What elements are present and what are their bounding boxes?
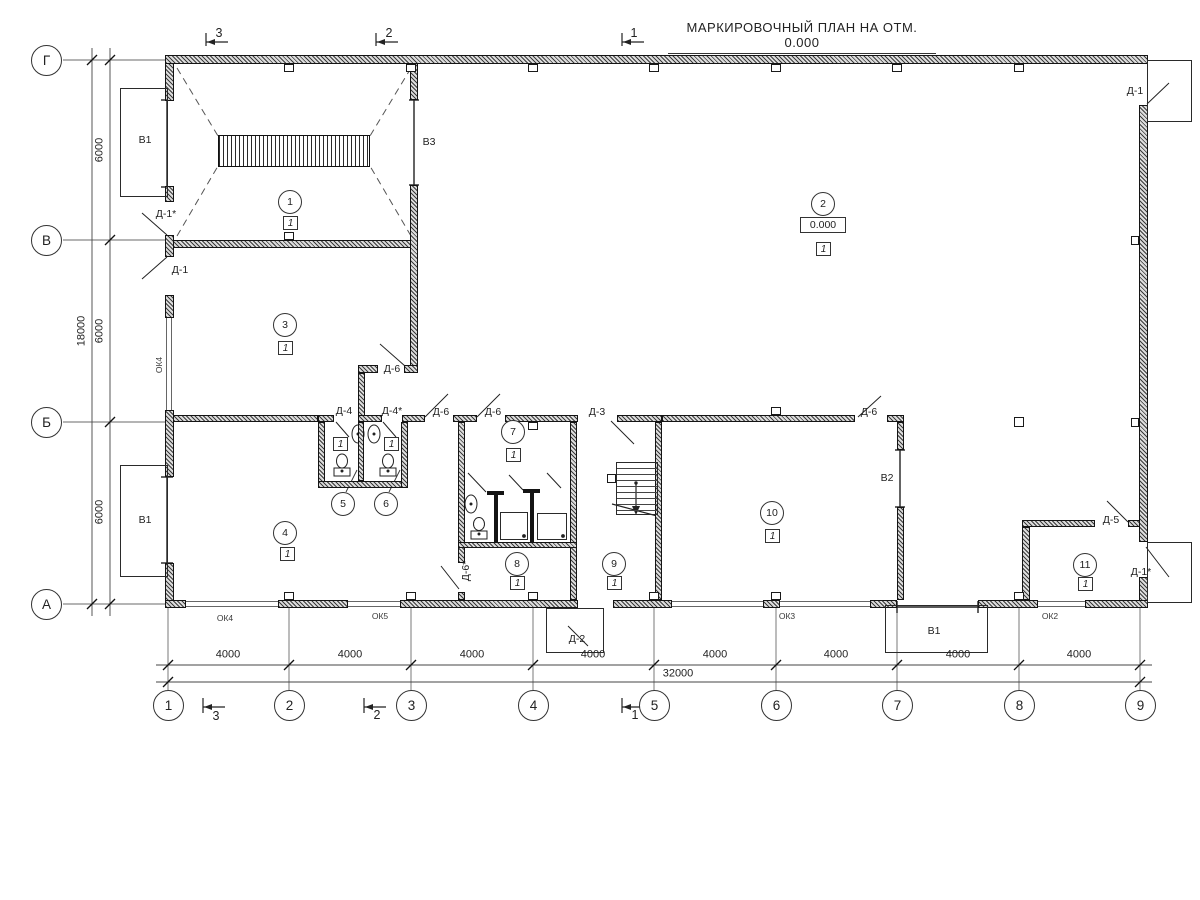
wall-row-b <box>402 415 425 422</box>
room-number-circle-1: 1 <box>278 190 302 214</box>
wall-wc-right <box>401 422 408 488</box>
wall-room78-left <box>458 592 465 600</box>
section-mark-bottom-2: 2 <box>374 709 381 722</box>
dim-bottom-2: 4000 <box>460 650 484 661</box>
room-number-circle-11: 11 <box>1073 553 1097 577</box>
wall-wc-bottom <box>318 481 408 488</box>
dim-left-0: 6000 <box>95 138 106 162</box>
window-ok4-leftwall <box>166 318 172 410</box>
floor-type-box-room-6: 1 <box>384 437 399 451</box>
wall-room1-east <box>410 185 418 373</box>
wall-room11-left <box>1022 527 1030 600</box>
window-label-ok4: ОК4 <box>217 614 233 623</box>
door-label-d1star-left: Д-1* <box>156 209 177 220</box>
room-number-circle-3: 3 <box>273 313 297 337</box>
dim-bottom-7: 4000 <box>1067 650 1091 661</box>
dim-bottom-5: 4000 <box>824 650 848 661</box>
floor-type-box-room-7: 1 <box>506 448 521 462</box>
door-label-d5: Д-5 <box>1103 515 1119 526</box>
column-marker <box>649 592 659 600</box>
staircase <box>616 462 658 515</box>
dim-bottom-4: 4000 <box>703 650 727 661</box>
column-marker <box>528 592 538 600</box>
window-label-ok4-leftwall: ОК4 <box>155 357 164 373</box>
room-number-circle-7: 7 <box>501 420 525 444</box>
wall-bottom <box>763 600 780 608</box>
window-ok2 <box>1038 601 1085 607</box>
column-marker <box>406 592 416 600</box>
door-label-d4star: Д-4* <box>382 406 403 417</box>
shower-stall <box>537 513 567 540</box>
dim-left-2: 6000 <box>95 500 106 524</box>
dim-left-total: 18000 <box>77 316 88 347</box>
window-ok3 <box>672 601 763 607</box>
shower-partition-cap <box>523 489 540 493</box>
room-number-circle-5: 5 <box>331 492 355 516</box>
dim-bottom-0: 4000 <box>216 650 240 661</box>
shower-partition <box>530 490 534 542</box>
column-marker <box>1014 592 1024 600</box>
wall-room3-jog <box>358 365 378 373</box>
window-label-ok5: ОК5 <box>372 612 388 621</box>
shower-partition-cap <box>487 491 504 495</box>
col-axis-circle-5: 5 <box>639 690 670 721</box>
column-marker <box>284 64 294 72</box>
wall-row-b <box>662 415 855 422</box>
dim-left-1: 6000 <box>95 319 106 343</box>
col-axis-circle-2: 2 <box>274 690 305 721</box>
floor-plan-canvas: МАРКИРОВОЧНЫЙ ПЛАН НА ОТМ. 0.000 <box>0 0 1200 900</box>
section-mark-top-2: 2 <box>386 27 393 40</box>
dim-bottom-1: 4000 <box>338 650 362 661</box>
row-axis-circle-А: А <box>31 589 62 620</box>
wall-right <box>1139 105 1148 542</box>
column-marker <box>771 592 781 600</box>
wall-row-b <box>887 415 904 422</box>
wall-corridor-left <box>570 422 577 600</box>
floor-type-box-room-10: 1 <box>765 529 780 543</box>
pilaster <box>1131 236 1139 245</box>
wall-bottom <box>400 600 578 608</box>
wall-wc-partition <box>358 422 364 481</box>
dim-bottom-3: 4000 <box>581 650 605 661</box>
section-mark-top-3: 3 <box>216 27 223 40</box>
vent-label-v3: В3 <box>423 137 436 148</box>
wall-room78-divider <box>458 542 577 548</box>
wall-left <box>165 295 174 318</box>
column-marker <box>649 64 659 72</box>
door-label-d6-room3: Д-6 <box>384 364 400 375</box>
wall-row-b <box>358 415 382 422</box>
section-mark-bottom-3: 3 <box>213 710 220 723</box>
column-marker <box>771 64 781 72</box>
window-ok3b <box>780 601 870 607</box>
floor-type-box-room-3: 1 <box>278 341 293 355</box>
wall-row-b <box>453 415 477 422</box>
wall-room11-cap <box>1128 520 1140 527</box>
row-axis-circle-В: В <box>31 225 62 256</box>
wall-room11-top <box>1022 520 1095 527</box>
room-number-circle-6: 6 <box>374 492 398 516</box>
pilaster <box>1131 418 1139 427</box>
floor-type-box-room-5: 1 <box>333 437 348 451</box>
wall-bottom <box>613 600 672 608</box>
column-marker <box>771 407 781 415</box>
column-marker <box>406 64 416 72</box>
vent-label-v1-bottom: В1 <box>928 626 941 637</box>
column-marker <box>284 232 294 240</box>
col-axis-circle-7: 7 <box>882 690 913 721</box>
dim-bottom-total: 32000 <box>663 669 694 680</box>
linework-layer <box>0 0 1200 900</box>
col-axis-circle-9: 9 <box>1125 690 1156 721</box>
floor-type-box-room-4: 1 <box>280 547 295 561</box>
shower-stall <box>500 512 528 540</box>
col-axis-circle-1: 1 <box>153 690 184 721</box>
row-axis-circle-Г: Г <box>31 45 62 76</box>
door-label-d6-room10: Д-6 <box>861 407 877 418</box>
column-marker <box>1014 64 1024 72</box>
elevation-value: 0.000 <box>810 219 836 231</box>
door-label-d4: Д-4 <box>336 406 352 417</box>
window-label-ok2: ОК2 <box>1042 612 1058 621</box>
door-label-d6star: Д-6* <box>461 561 472 582</box>
wall-bottom <box>165 600 186 608</box>
vent-label-v2: В2 <box>881 473 894 484</box>
section-mark-bottom-1: 1 <box>632 709 639 722</box>
window-label-ok3: ОК3 <box>779 612 795 621</box>
room-number-circle-8: 8 <box>505 552 529 576</box>
window-ok4 <box>186 601 278 607</box>
floor-type-box-room-1: 1 <box>283 216 298 230</box>
door-label-d6-room7: Д-6 <box>485 407 501 418</box>
column-marker <box>284 592 294 600</box>
room-number-circle-2: 2 <box>811 192 835 216</box>
dim-bottom-6: 4000 <box>946 650 970 661</box>
floor-type-box-room-11: 1 <box>1078 577 1093 591</box>
floor-type-box-room-2: 1 <box>816 242 831 256</box>
shower-partition <box>494 492 498 543</box>
door-label-d6-room4: Д-6 <box>433 407 449 418</box>
room-number-circle-9: 9 <box>602 552 626 576</box>
door-label-d2: Д-2 <box>569 634 585 645</box>
col-axis-circle-6: 6 <box>761 690 792 721</box>
door-label-d1star-bottomright: Д-1* <box>1131 567 1152 578</box>
col-axis-circle-4: 4 <box>518 690 549 721</box>
porch-bottomright <box>1147 542 1192 603</box>
wall-top <box>165 55 1148 64</box>
wall-row-b <box>617 415 662 422</box>
col-axis-circle-3: 3 <box>396 690 427 721</box>
door-label-d3: Д-3 <box>589 407 605 418</box>
wall-row-b <box>318 415 334 422</box>
elevation-mark: 0.000 <box>800 217 846 233</box>
wall-wc-left <box>318 422 325 488</box>
row-axis-circle-Б: Б <box>31 407 62 438</box>
vent-label-v1-topleft: В1 <box>139 135 152 146</box>
wall-room10-east <box>897 507 904 600</box>
door-label-d1-left: Д-1 <box>172 265 188 276</box>
column-marker <box>892 64 902 72</box>
wall-room3-jog <box>404 365 418 373</box>
floor-type-box-room-9: 1 <box>607 576 622 590</box>
room-number-circle-4: 4 <box>273 521 297 545</box>
wall-room10-east <box>897 422 904 450</box>
door-label-d1-topright: Д-1 <box>1127 86 1143 97</box>
freestanding-column <box>1014 417 1024 427</box>
floor-type-box-room-8: 1 <box>510 576 525 590</box>
porch-topright <box>1147 60 1192 122</box>
room-number-circle-10: 10 <box>760 501 784 525</box>
wall-bottom <box>278 600 348 608</box>
porch-d2 <box>546 608 604 653</box>
stair-marker <box>607 474 616 483</box>
wall-bottom <box>1085 600 1148 608</box>
window-ok5 <box>348 601 400 607</box>
section-mark-top-1: 1 <box>631 27 638 40</box>
wall-row-v <box>173 240 418 248</box>
vent-label-v1-bottomleft: В1 <box>139 515 152 526</box>
wall-row-b <box>173 415 318 422</box>
column-marker <box>528 64 538 72</box>
room1-equipment-hatch <box>218 135 370 167</box>
col-axis-circle-8: 8 <box>1004 690 1035 721</box>
column-marker <box>528 422 538 430</box>
